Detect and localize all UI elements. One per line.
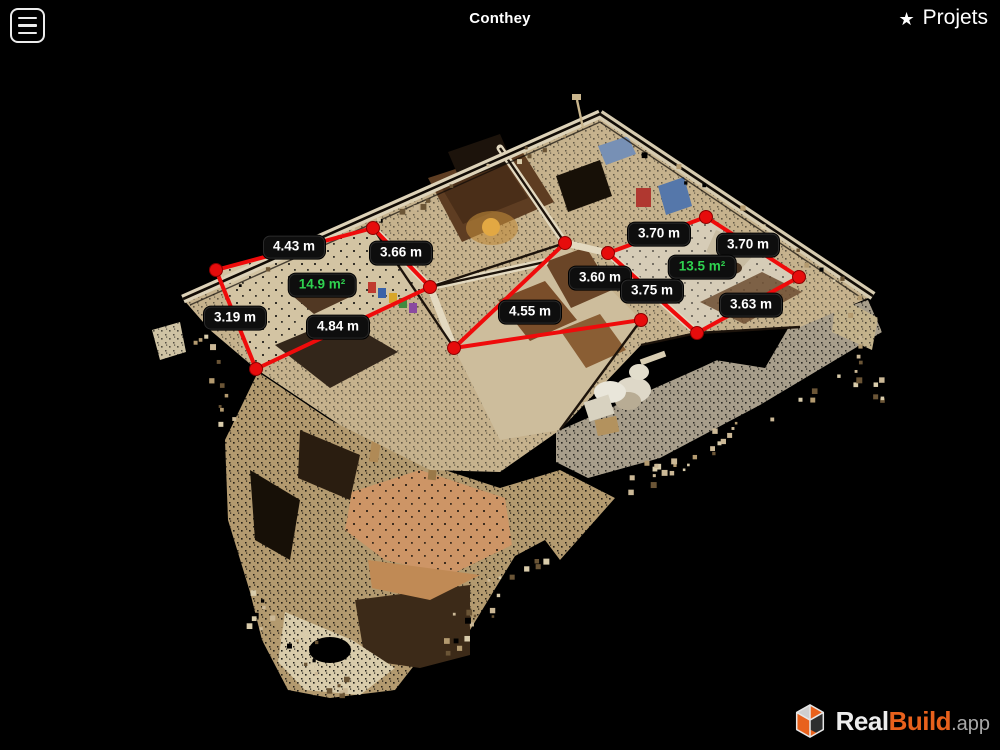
measurement-label[interactable]: 3.19 m xyxy=(204,307,266,330)
projects-label: Projets xyxy=(923,6,988,30)
scatter-dot xyxy=(310,665,315,670)
scatter-dot xyxy=(225,394,229,398)
scatter-dot xyxy=(220,408,224,412)
scatter-dot xyxy=(220,383,225,388)
scatter-dot xyxy=(279,623,283,627)
scatter-dot xyxy=(732,427,735,430)
scatter-dot xyxy=(859,361,863,365)
scatter-dot xyxy=(450,184,454,188)
page-title: Conthey xyxy=(0,10,1000,27)
measurement-endpoint-handle[interactable] xyxy=(250,363,263,376)
scatter-dot xyxy=(712,452,715,455)
scatter-dot xyxy=(275,639,281,645)
scatter-dot xyxy=(840,277,844,281)
scatter-dot xyxy=(670,471,675,476)
scatter-dot xyxy=(492,615,495,618)
scatter-dot xyxy=(693,455,697,459)
scatter-dot xyxy=(848,313,853,318)
scatter-dot xyxy=(261,599,264,602)
scatter-dot xyxy=(543,148,547,152)
scatter-dot xyxy=(536,564,541,569)
scatter-dot xyxy=(315,672,318,675)
measurement-endpoint-handle[interactable] xyxy=(367,222,380,235)
scatter-dot xyxy=(837,374,840,377)
scatter-dot xyxy=(199,338,203,342)
scatter-dot xyxy=(413,205,418,210)
scatter-dot xyxy=(683,469,686,472)
scatter-dot xyxy=(466,610,472,616)
scatter-dot xyxy=(457,646,462,651)
scatter-dot xyxy=(727,433,732,438)
scatter-dot xyxy=(862,371,866,375)
scatter-dot xyxy=(210,344,216,350)
scatter-dot xyxy=(302,633,308,639)
scatter-dot xyxy=(426,199,430,203)
scatter-dot xyxy=(490,608,495,613)
measurement-endpoint-handle[interactable] xyxy=(210,264,223,277)
scatter-dot xyxy=(232,417,236,421)
scatter-dot xyxy=(721,439,726,444)
scatter-dot xyxy=(474,615,477,618)
scatter-dot xyxy=(841,388,844,391)
scatter-dot xyxy=(651,482,657,488)
scatter-dot xyxy=(563,135,566,138)
scatter-dot xyxy=(799,398,803,402)
realbuild-cube-icon xyxy=(791,701,829,741)
scatter-dot xyxy=(639,490,644,495)
scatter-dot xyxy=(676,164,681,169)
scatter-dot xyxy=(340,691,343,694)
scatter-dot xyxy=(400,209,406,215)
scatter-dot xyxy=(856,377,862,383)
scatter-dot xyxy=(464,636,470,642)
scatter-dot xyxy=(327,688,333,694)
measurement-endpoint-handle[interactable] xyxy=(700,211,713,224)
scatter-dot xyxy=(410,199,413,202)
scatter-dot xyxy=(218,422,223,427)
scatter-dot xyxy=(270,615,275,620)
measurement-label[interactable]: 3.75 m xyxy=(621,280,683,303)
scatter-dot xyxy=(858,344,862,348)
scatter-dot xyxy=(702,183,706,187)
scatter-dot xyxy=(858,296,862,300)
scatter-dot xyxy=(209,378,214,383)
measurement-label[interactable]: 4.84 m xyxy=(307,316,369,339)
scatter-dot xyxy=(444,638,450,644)
scatter-dot xyxy=(194,341,198,345)
scatter-dot xyxy=(266,267,270,271)
scatter-dot xyxy=(654,464,658,468)
scatter-dot xyxy=(313,691,317,695)
scatter-dot xyxy=(239,284,242,287)
scatter-dot xyxy=(630,475,635,480)
scatter-dot xyxy=(488,579,491,582)
scatter-dot xyxy=(525,146,528,149)
measurement-endpoint-handle[interactable] xyxy=(691,327,704,340)
scatter-dot xyxy=(262,606,265,609)
scatter-dot xyxy=(810,398,815,403)
scatter-dot xyxy=(421,204,427,210)
scatter-dot xyxy=(274,621,280,627)
scatter-dot xyxy=(856,350,859,353)
scatter-dot xyxy=(313,659,316,662)
scatter-dot xyxy=(527,154,531,158)
scatter-dot xyxy=(712,428,717,433)
scatter-dot xyxy=(377,218,381,222)
scatter-dot xyxy=(343,688,348,693)
scatter-dot xyxy=(446,651,451,656)
measurement-label[interactable]: 4.43 m xyxy=(263,236,325,259)
pointcloud-house xyxy=(0,0,1000,750)
scatter-dot xyxy=(796,249,799,252)
scatter-dot xyxy=(804,263,809,268)
scatter-dot xyxy=(497,594,500,597)
scatter-dot xyxy=(874,382,878,386)
scatter-dot xyxy=(465,618,471,624)
scatter-dot xyxy=(543,559,549,565)
scatter-dot xyxy=(653,474,656,477)
measurement-endpoint-handle[interactable] xyxy=(559,237,572,250)
star-icon: ★ xyxy=(899,9,915,30)
scatter-dot xyxy=(628,490,633,495)
scatter-dot xyxy=(499,576,502,579)
logo-text-build: Build xyxy=(889,706,952,736)
scatter-dot xyxy=(833,279,835,281)
scatter-dot xyxy=(260,627,263,630)
measurement-label[interactable]: 3.66 m xyxy=(370,242,432,265)
measurement-endpoint-handle[interactable] xyxy=(635,314,648,327)
measurement-label[interactable]: 4.55 m xyxy=(499,301,561,324)
scene-viewport[interactable]: 4.43 m3.66 m3.19 m4.84 m3.60 m4.55 m3.70… xyxy=(0,0,1000,750)
scatter-dot xyxy=(219,405,222,408)
scatter-dot xyxy=(710,446,715,451)
logo-text-real: Real xyxy=(836,706,889,736)
scatter-dot xyxy=(252,616,257,621)
scatter-dot xyxy=(289,656,292,659)
top-bar: Conthey ★ Projets xyxy=(0,0,1000,50)
scatter-dot xyxy=(642,152,648,158)
scatter-dot xyxy=(674,176,677,179)
scatter-dot xyxy=(662,470,668,476)
realbuild-logo: RealBuild.app xyxy=(791,701,990,741)
scatter-dot xyxy=(251,590,257,596)
scatter-dot xyxy=(486,164,489,167)
scatter-dot xyxy=(855,370,858,373)
measurement-label[interactable]: 3.63 m xyxy=(720,294,782,317)
measurement-endpoint-handle[interactable] xyxy=(602,247,615,260)
area-label[interactable]: 13.5 m² xyxy=(669,256,736,279)
measurement-endpoint-handle[interactable] xyxy=(448,342,461,355)
scatter-dot xyxy=(524,566,529,571)
scatter-dot xyxy=(770,418,774,422)
scatter-dot xyxy=(352,227,355,230)
scatter-dot xyxy=(204,335,208,339)
scatter-dot xyxy=(881,397,885,401)
scatter-dot xyxy=(222,389,225,392)
scatter-dot xyxy=(340,693,345,698)
measurement-endpoint-handle[interactable] xyxy=(424,281,437,294)
scatter-dot xyxy=(217,360,221,364)
scatter-dot xyxy=(247,623,253,629)
scatter-dot xyxy=(859,336,863,340)
scatter-dot xyxy=(819,268,823,272)
scatter-dot xyxy=(280,636,283,639)
scatter-dot xyxy=(873,394,878,399)
scatter-dot xyxy=(454,639,459,644)
scatter-dot xyxy=(315,641,318,644)
scatter-dot xyxy=(671,458,677,464)
scatter-dot xyxy=(879,377,884,382)
measurement-label[interactable]: 3.70 m xyxy=(628,223,690,246)
scatter-dot xyxy=(812,388,818,394)
scatter-dot xyxy=(735,422,738,425)
scatter-dot xyxy=(687,464,690,467)
scatter-dot xyxy=(698,185,701,188)
measurement-label[interactable]: 3.70 m xyxy=(717,234,779,257)
scatter-dot xyxy=(684,181,687,184)
scatter-dot xyxy=(304,663,307,666)
scatter-dot xyxy=(517,159,522,164)
scatter-dot xyxy=(761,224,765,228)
projects-button[interactable]: ★ Projets xyxy=(899,6,989,30)
scatter-dot xyxy=(231,280,234,283)
scatter-dot xyxy=(344,677,350,683)
measurement-endpoint-handle[interactable] xyxy=(793,271,806,284)
scatter-dot xyxy=(510,575,515,580)
scatter-dot xyxy=(213,368,218,373)
scatter-dot xyxy=(644,461,649,466)
scatter-dot xyxy=(740,205,745,210)
scatter-dot xyxy=(515,563,520,568)
scatter-dot xyxy=(453,613,456,616)
scatter-dot xyxy=(857,355,861,359)
hamburger-icon xyxy=(18,32,37,35)
scatter-dot xyxy=(535,559,540,564)
logo-text-app: .app xyxy=(951,713,990,735)
area-label[interactable]: 14.9 m² xyxy=(289,274,356,297)
scatter-dot xyxy=(338,684,341,687)
scatter-dot xyxy=(287,644,292,649)
scatter-dot xyxy=(296,640,299,643)
